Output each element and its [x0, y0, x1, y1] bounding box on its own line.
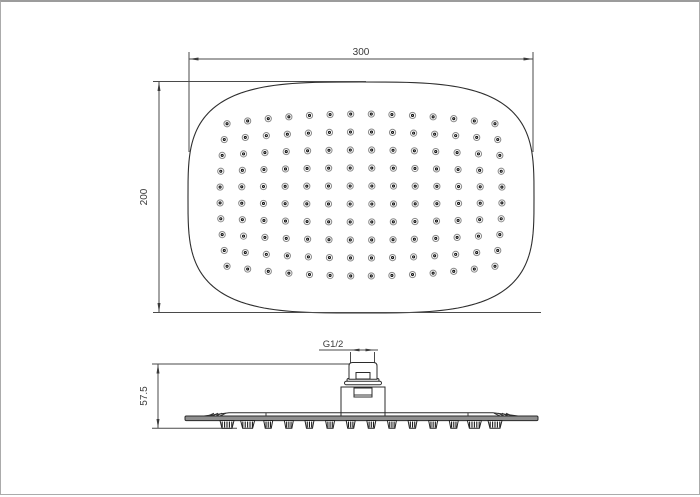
nozzle-pinhole	[371, 275, 372, 276]
nozzle-pinhole	[458, 203, 459, 204]
nozzle-pinhole	[478, 153, 479, 154]
nozzle-pinhole	[245, 252, 246, 253]
nozzle-pinhole	[222, 234, 223, 235]
nozzle-pinhole	[268, 271, 269, 272]
thread-pipe	[356, 373, 370, 380]
nozzle-pinhole	[350, 132, 351, 133]
nozzle-pinhole	[350, 275, 351, 276]
nozzle-pinhole	[497, 139, 498, 140]
nozzle-pinhole	[455, 254, 456, 255]
nozzle-pinhole	[306, 203, 307, 204]
nozzle-pinhole	[474, 269, 475, 270]
nozzle-pinhole	[455, 135, 456, 136]
nozzle-pinhole	[393, 203, 394, 204]
nozzle-pinhole	[414, 239, 415, 240]
nozzle-pinhole	[307, 168, 308, 169]
arrowhead-icon	[158, 82, 161, 92]
nozzle-pinhole	[436, 186, 437, 187]
nozzle-pinhole	[476, 137, 477, 138]
nozzle-pinhole	[501, 218, 502, 219]
nozzle-pinhole	[457, 237, 458, 238]
nozzle-pinhole	[350, 240, 351, 241]
nozzle-pinhole	[392, 257, 393, 258]
arrowhead-icon	[351, 349, 360, 352]
nozzle-pinhole	[457, 152, 458, 153]
nozzle-pinhole	[268, 118, 269, 119]
nozzle-pinhole	[263, 169, 264, 170]
swivel-flange-lower	[345, 381, 382, 385]
nozzle-pinhole	[266, 135, 267, 136]
nozzle-pinhole	[285, 186, 286, 187]
nozzle-pinhole	[241, 186, 242, 187]
nozzle-pinhole	[393, 239, 394, 240]
nozzle-pinhole	[307, 221, 308, 222]
nozzle-pinhole	[329, 257, 330, 258]
nozzle-pinhole	[371, 186, 372, 187]
nozzle-pinhole	[350, 204, 351, 205]
base-notch-shade	[355, 394, 372, 397]
nozzle-pinhole	[495, 123, 496, 124]
nozzle-pinhole	[371, 222, 372, 223]
nozzle-pinhole	[220, 202, 221, 203]
nozzle-pinhole	[350, 258, 351, 259]
nozzle-pinhole	[371, 132, 372, 133]
nozzle-pinhole	[328, 186, 329, 187]
nozzle-pinhole	[247, 269, 248, 270]
nozzle-pinhole	[288, 116, 289, 117]
nozzle-pinhole	[499, 155, 500, 156]
nozzle-pinhole	[307, 150, 308, 151]
arrowhead-icon	[157, 364, 160, 374]
nozzle-pinhole	[242, 219, 243, 220]
nozzle-pinhole	[497, 250, 498, 251]
nozzle-pinhole	[328, 203, 329, 204]
nozzle-pinhole	[393, 150, 394, 151]
nozzle-pinhole	[480, 186, 481, 187]
nozzle-pinhole	[329, 132, 330, 133]
nozzle-pinhole	[309, 274, 310, 275]
nozzle-pinhole	[242, 170, 243, 171]
nozzle-pinhole	[350, 150, 351, 151]
nozzle-pinhole	[479, 219, 480, 220]
shower-head-outline	[188, 82, 534, 313]
nozzle-pinhole	[285, 221, 286, 222]
nozzle-pinhole	[224, 250, 225, 251]
side-nozzles	[220, 421, 502, 429]
dimension-label-side-height: 57.5	[139, 386, 150, 406]
nozzle-pinhole	[263, 220, 264, 221]
nozzle-pinhole	[263, 186, 264, 187]
arrowhead-icon	[157, 419, 160, 428]
nozzle-pinhole	[436, 168, 437, 169]
nozzle-pinhole	[453, 271, 454, 272]
inlet-connector	[341, 363, 385, 417]
nozzle-pinhole	[458, 186, 459, 187]
nozzle-pinhole	[371, 240, 372, 241]
nozzle-pinhole	[435, 151, 436, 152]
arrowhead-icon	[158, 303, 161, 313]
nozzle-pinhole	[306, 186, 307, 187]
nozzle-pinhole	[288, 273, 289, 274]
nozzle-pinhole	[458, 220, 459, 221]
nozzle-pinhole	[307, 239, 308, 240]
nozzle-pinhole	[413, 256, 414, 257]
nozzle-pinhole	[371, 114, 372, 115]
nozzle-pinhole	[247, 121, 248, 122]
nozzle-pinhole	[350, 222, 351, 223]
nozzle-pinhole	[392, 132, 393, 133]
nozzle-pinhole	[436, 203, 437, 204]
nozzle-pinhole	[474, 121, 475, 122]
nozzle-pinhole	[245, 137, 246, 138]
nozzle-pinhole	[393, 186, 394, 187]
nozzle-pinhole	[391, 275, 392, 276]
nozzle-pinhole	[287, 134, 288, 135]
nozzle-pinhole	[350, 114, 351, 115]
nozzle-pinhole	[371, 150, 372, 151]
drawing-sheet: 300 200 57.5 G1/2	[0, 0, 700, 495]
nozzle-pinhole	[350, 186, 351, 187]
side-view: 57.5 G1/2	[139, 339, 538, 428]
nozzle-pinhole	[286, 151, 287, 152]
nozzle-pinhole	[285, 203, 286, 204]
nozzle-pinhole	[308, 133, 309, 134]
nozzle-pinhole	[501, 171, 502, 172]
arrowhead-icon	[189, 58, 199, 61]
nozzle-pinhole	[330, 114, 331, 115]
thread-size-label: G1/2	[323, 339, 344, 350]
nozzle-pinhole	[433, 116, 434, 117]
nozzle-pinhole	[243, 236, 244, 237]
nozzle-pinhole	[220, 187, 221, 188]
nozzle-pinhole	[458, 169, 459, 170]
nozzle-pinhole	[227, 266, 228, 267]
nozzle-pinhole	[350, 168, 351, 169]
nozzle-pinhole	[266, 254, 267, 255]
nozzle-pinhole	[393, 168, 394, 169]
nozzle-pinhole	[415, 203, 416, 204]
nozzle-pinhole	[330, 275, 331, 276]
nozzle-pinhole	[413, 133, 414, 134]
nozzle-pinhole	[328, 221, 329, 222]
nozzle-pinhole	[414, 168, 415, 169]
nozzle-pinhole	[393, 221, 394, 222]
nozzle-pinhole	[286, 238, 287, 239]
nozzle-pinhole	[433, 273, 434, 274]
nozzle-pinhole	[435, 238, 436, 239]
nozzle-pinhole	[501, 202, 502, 203]
nozzle-pinhole	[329, 150, 330, 151]
nozzle-pinhole	[263, 203, 264, 204]
nozzle-pinhole	[220, 218, 221, 219]
nozzle-pinhole	[499, 234, 500, 235]
dimension-label-width: 300	[353, 47, 370, 58]
nozzle-pinhole	[495, 266, 496, 267]
arrowhead-icon	[366, 349, 375, 352]
nozzle-pinhole	[478, 236, 479, 237]
nozzle-pinhole	[371, 258, 372, 259]
face-plate	[185, 416, 538, 421]
nozzle-pinhole	[434, 134, 435, 135]
nozzle-pinhole	[241, 203, 242, 204]
nozzle-pinhole	[308, 256, 309, 257]
nozzle-pinhole	[501, 187, 502, 188]
nozzle-pinhole	[264, 152, 265, 153]
nozzle-pinhole	[415, 186, 416, 187]
nozzle-pinhole	[309, 115, 310, 116]
nozzle-pinhole	[227, 123, 228, 124]
dimension-label-height: 200	[139, 188, 150, 205]
nozzle-pinhole	[220, 171, 221, 172]
nozzle-pinhole	[371, 168, 372, 169]
nozzle-pinhole	[285, 168, 286, 169]
nozzle-pinhole	[476, 252, 477, 253]
nozzle-pinhole	[479, 170, 480, 171]
nozzle-pinhole	[453, 118, 454, 119]
nozzle-pinhole	[224, 139, 225, 140]
nozzle-pinhole	[329, 239, 330, 240]
nozzle-pinhole	[287, 255, 288, 256]
nozzle-pinhole	[480, 203, 481, 204]
shower-head-technical-drawing: 300 200 57.5 G1/2	[1, 2, 700, 497]
nozzle-pinhole	[412, 274, 413, 275]
nozzle-pinhole	[391, 114, 392, 115]
top-view	[188, 82, 534, 313]
nozzle-pinhole	[414, 221, 415, 222]
arrowhead-icon	[524, 58, 534, 61]
nozzle-pinhole	[412, 115, 413, 116]
nozzle-pinhole	[371, 204, 372, 205]
nozzle-pinhole	[414, 150, 415, 151]
nozzle-pinhole	[436, 221, 437, 222]
nozzle-pinhole	[222, 155, 223, 156]
nozzle-pinhole	[434, 255, 435, 256]
nozzle-pinhole	[243, 153, 244, 154]
nozzle-pinhole	[328, 168, 329, 169]
nozzle-pinhole	[264, 237, 265, 238]
